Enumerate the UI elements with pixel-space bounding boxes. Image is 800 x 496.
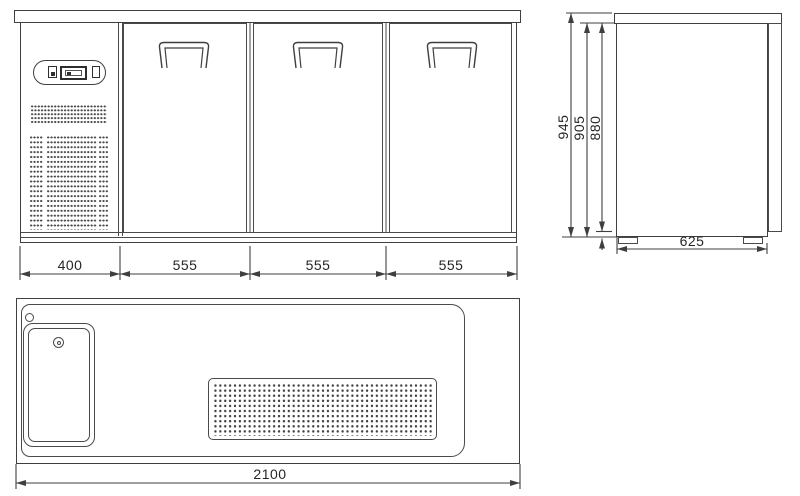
panel-button-right — [92, 66, 101, 78]
door-1-handle — [158, 41, 210, 69]
vent-grille-upper — [30, 104, 107, 123]
dim-label-overall-width: 2100 — [240, 467, 300, 481]
plan-drain-grille-holes — [212, 382, 433, 436]
dim-label-body-height: 880 — [588, 98, 602, 158]
side-door-panel — [768, 23, 782, 232]
plan-tap-hole — [25, 313, 34, 322]
side-countertop — [614, 13, 782, 24]
dim-label-overall-height: 945 — [556, 97, 570, 157]
dim-label-height-under-top: 905 — [572, 98, 586, 158]
plan-sink-drain-center — [57, 341, 62, 346]
panel-button-left-dot — [51, 72, 55, 77]
side-foot-right — [743, 237, 763, 244]
front-plinth-line — [21, 237, 516, 238]
door-3-handle — [426, 41, 478, 69]
dim-label-door1-width: 555 — [155, 258, 215, 272]
vent-grille-lower-left — [29, 134, 43, 230]
side-body — [616, 23, 768, 237]
plan-drain-grille — [208, 378, 437, 440]
vent-grille-lower-right — [98, 134, 109, 230]
vent-grille-lower-middle — [46, 134, 97, 230]
panel-display-dash — [67, 72, 71, 75]
technical-drawing-canvas: 400 555 555 555 945 905 880 625 2100 — [0, 0, 800, 496]
dim-label-door3-width: 555 — [421, 258, 481, 272]
side-foot-left — [618, 237, 638, 244]
dim-label-door2-width: 555 — [288, 258, 348, 272]
dim-label-depth: 625 — [662, 234, 722, 248]
dim-label-compressor-width: 400 — [40, 258, 100, 272]
door-2-handle — [292, 41, 344, 69]
